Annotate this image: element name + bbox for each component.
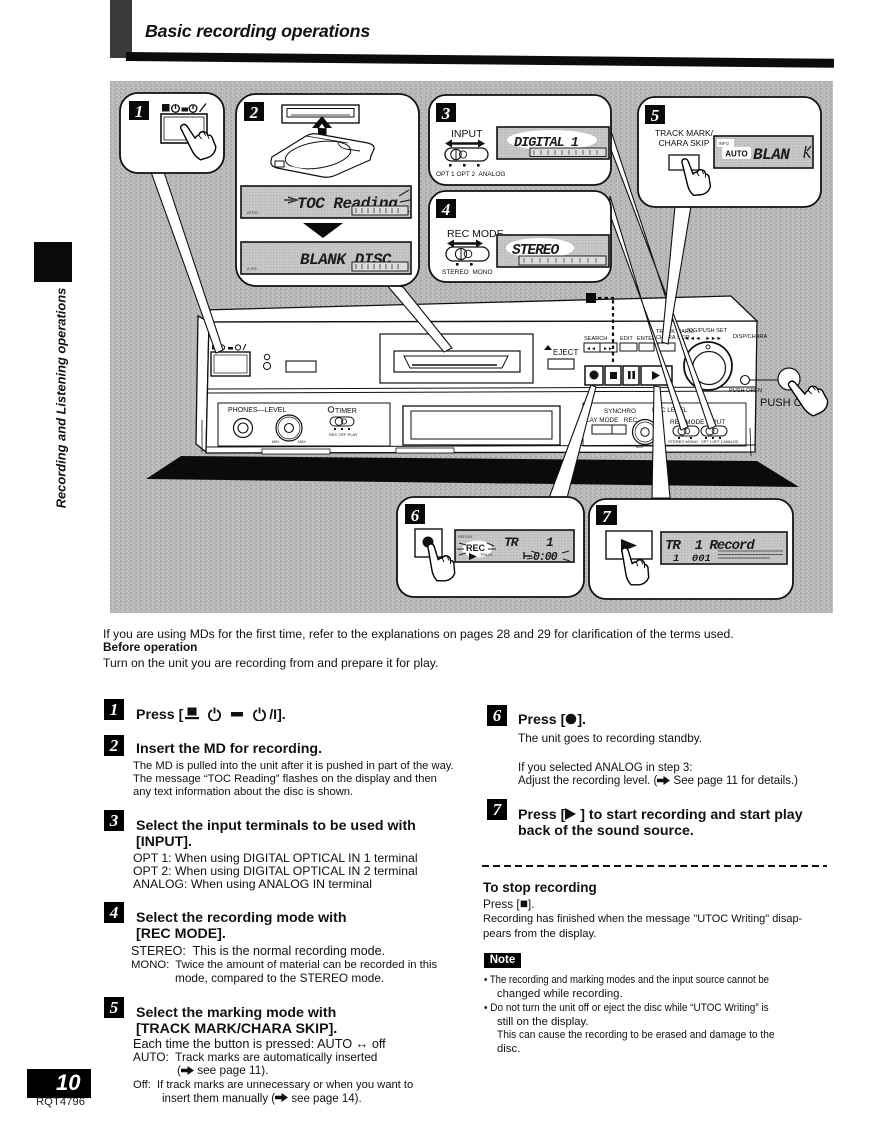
svg-text:INFO: INFO — [719, 141, 730, 146]
svg-text:INPUT: INPUT — [451, 128, 483, 140]
svg-text:MIN: MIN — [272, 440, 279, 444]
svg-text:OPT 1 OPT 2 ANALOG: OPT 1 OPT 2 ANALOG — [701, 440, 739, 444]
svg-text:REC MODE: REC MODE — [447, 228, 504, 240]
svg-text:4: 4 — [441, 200, 451, 219]
svg-text:►►: ►► — [603, 346, 613, 352]
svg-text:◄◄◄ ►►►: ◄◄◄ ►►► — [684, 336, 722, 342]
svg-text:STEREO MONO: STEREO MONO — [442, 269, 493, 276]
svg-text:5: 5 — [651, 106, 660, 125]
svg-text:ATRG: ATRG — [247, 210, 258, 215]
svg-text:TR: TR — [504, 535, 519, 550]
svg-text:TR 1 Record: TR 1 Record — [665, 538, 755, 554]
svg-text:1: 1 — [135, 102, 144, 121]
svg-text:TRACK MARK/: TRACK MARK/ — [655, 128, 714, 138]
svg-text:REC: REC — [466, 543, 486, 553]
svg-text:EDIT: EDIT — [620, 336, 633, 342]
svg-text:SYNCHRO: SYNCHRO — [604, 408, 636, 415]
svg-text:AUTO: AUTO — [725, 150, 748, 159]
svg-text:TIMER: TIMER — [335, 408, 357, 415]
svg-text:PUSH O: PUSH O — [760, 397, 803, 409]
svg-text:LAY MODE REC: LAY MODE REC — [586, 417, 638, 424]
svg-text:MAX: MAX — [298, 440, 306, 444]
svg-text:SEARCH: SEARCH — [584, 336, 607, 342]
svg-text:REC OFF PLAY: REC OFF PLAY — [329, 432, 358, 437]
svg-text:A-PG: A-PG — [247, 266, 257, 271]
svg-text:1: 1 — [546, 535, 554, 550]
svg-text:REPLAY: REPLAY — [458, 535, 473, 539]
svg-text:STEREO MONO: STEREO MONO — [668, 439, 698, 444]
svg-text:BLAN: BLAN — [753, 146, 790, 164]
svg-text:EJECT: EJECT — [553, 348, 578, 357]
svg-text:2: 2 — [249, 103, 259, 122]
svg-text:JOG/PUSH SET: JOG/PUSH SET — [686, 328, 728, 334]
svg-text:CHARA SKIP: CHARA SKIP — [658, 138, 709, 148]
svg-text:OPT 1 OPT 2 ANALOG: OPT 1 OPT 2 ANALOG — [436, 171, 505, 178]
svg-text:◄◄: ◄◄ — [586, 346, 596, 352]
svg-text:3: 3 — [441, 104, 451, 123]
svg-text:PHONES—LEVEL: PHONES—LEVEL — [228, 407, 286, 414]
svg-text:PUSH OPEN: PUSH OPEN — [729, 388, 762, 394]
svg-text:TRACK: TRACK — [480, 553, 493, 557]
svg-text:1 001: 1 001 — [673, 553, 711, 565]
svg-text:DISP/CHARA: DISP/CHARA — [733, 334, 767, 340]
svg-text:6: 6 — [411, 506, 420, 525]
svg-text:MIN: MIN — [636, 445, 643, 449]
